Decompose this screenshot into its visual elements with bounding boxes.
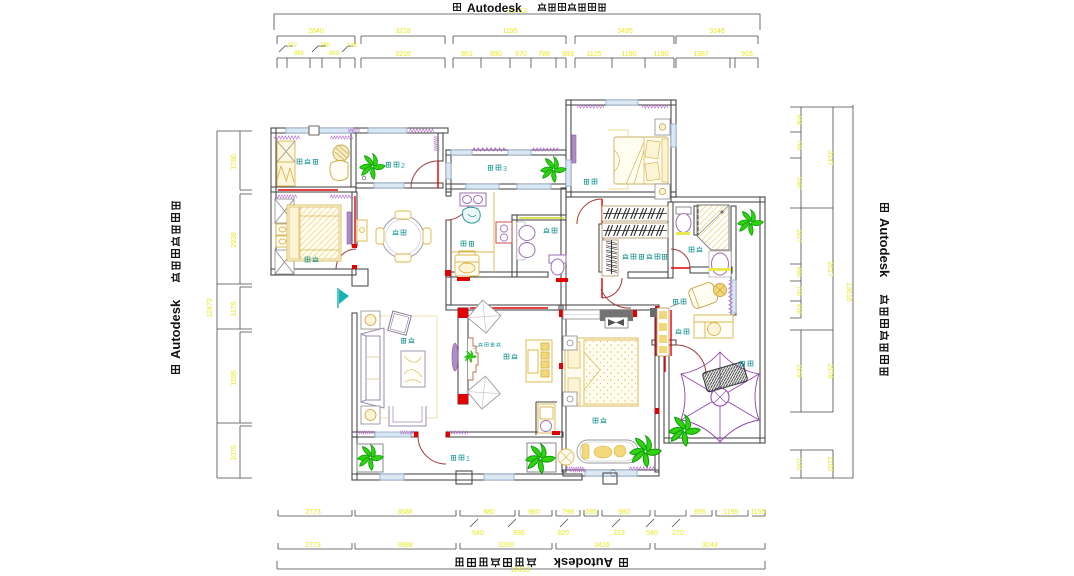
- svg-text:885: 885: [294, 51, 305, 57]
- svg-text:1595: 1595: [231, 370, 238, 386]
- svg-text:295: 295: [585, 509, 597, 516]
- svg-text:788: 788: [538, 51, 550, 58]
- svg-text:472: 472: [287, 43, 298, 49]
- svg-text:2578: 2578: [826, 363, 833, 379]
- svg-text:915: 915: [741, 51, 753, 58]
- svg-text:1195: 1195: [502, 28, 517, 35]
- svg-text:2938: 2938: [231, 232, 238, 248]
- svg-text:2: 2: [401, 163, 405, 170]
- svg-text:2578: 2578: [795, 364, 801, 378]
- svg-text:1190: 1190: [653, 51, 668, 58]
- svg-text:1: 1: [466, 456, 470, 463]
- svg-text:1155: 1155: [750, 509, 765, 516]
- svg-text:290: 290: [320, 43, 331, 49]
- svg-text:3218: 3218: [395, 28, 411, 35]
- svg-text:851: 851: [461, 51, 473, 58]
- svg-text:980: 980: [528, 509, 540, 516]
- svg-text:895: 895: [694, 509, 706, 516]
- svg-text:680: 680: [795, 267, 801, 278]
- svg-text:836: 836: [513, 530, 525, 537]
- svg-text:3688: 3688: [397, 509, 413, 516]
- svg-text:270: 270: [672, 530, 684, 537]
- svg-text:12473: 12473: [207, 298, 214, 318]
- svg-text:3426: 3426: [594, 542, 610, 549]
- svg-text:3243: 3243: [702, 542, 718, 549]
- svg-text:540: 540: [472, 530, 484, 537]
- svg-text:608: 608: [795, 115, 801, 126]
- svg-text:3495: 3495: [617, 28, 633, 35]
- svg-text:2817: 2817: [795, 229, 801, 243]
- svg-text:798: 798: [562, 509, 574, 516]
- svg-text:1175: 1175: [231, 301, 238, 316]
- svg-text:980: 980: [483, 509, 495, 516]
- svg-text:1087: 1087: [795, 176, 801, 190]
- svg-text:540: 540: [646, 530, 658, 537]
- svg-text:1102: 1102: [795, 458, 801, 472]
- svg-text:1190: 1190: [621, 51, 636, 58]
- svg-text:980: 980: [618, 509, 630, 516]
- svg-text:1195: 1195: [723, 509, 738, 516]
- svg-text:Autodesk: Autodesk: [877, 218, 892, 278]
- svg-text:3218: 3218: [395, 51, 411, 58]
- svg-text:1075: 1075: [231, 445, 238, 461]
- svg-text:2773: 2773: [305, 509, 321, 516]
- svg-text:2773: 2773: [305, 542, 321, 549]
- svg-text:3147: 3147: [826, 150, 833, 166]
- svg-text:890: 890: [490, 51, 502, 58]
- svg-text:3260: 3260: [498, 542, 514, 549]
- svg-text:1102: 1102: [826, 456, 833, 471]
- svg-text:1125: 1125: [586, 51, 601, 58]
- svg-text:1780: 1780: [231, 154, 238, 170]
- svg-text:145: 145: [347, 43, 358, 49]
- svg-text:2840: 2840: [308, 28, 324, 35]
- svg-text:13616: 13616: [845, 282, 852, 302]
- svg-text:3146: 3146: [709, 28, 725, 35]
- svg-text:Autodesk: Autodesk: [553, 555, 613, 570]
- svg-text:818: 818: [795, 304, 801, 315]
- svg-text:3688: 3688: [397, 542, 413, 549]
- svg-text:993: 993: [562, 51, 574, 58]
- svg-text:670: 670: [515, 51, 527, 58]
- svg-text:883: 883: [329, 51, 340, 57]
- svg-text:313: 313: [613, 530, 625, 537]
- svg-text:1987: 1987: [693, 51, 709, 58]
- svg-text:3: 3: [503, 166, 507, 173]
- svg-text:700: 700: [795, 286, 801, 297]
- svg-text:12413: 12413: [510, 567, 530, 574]
- svg-text:745: 745: [795, 140, 801, 151]
- svg-text:2617: 2617: [826, 261, 833, 277]
- svg-text:Autodesk: Autodesk: [168, 299, 183, 359]
- svg-text:Autodesk: Autodesk: [467, 1, 522, 15]
- svg-text:320: 320: [557, 530, 569, 537]
